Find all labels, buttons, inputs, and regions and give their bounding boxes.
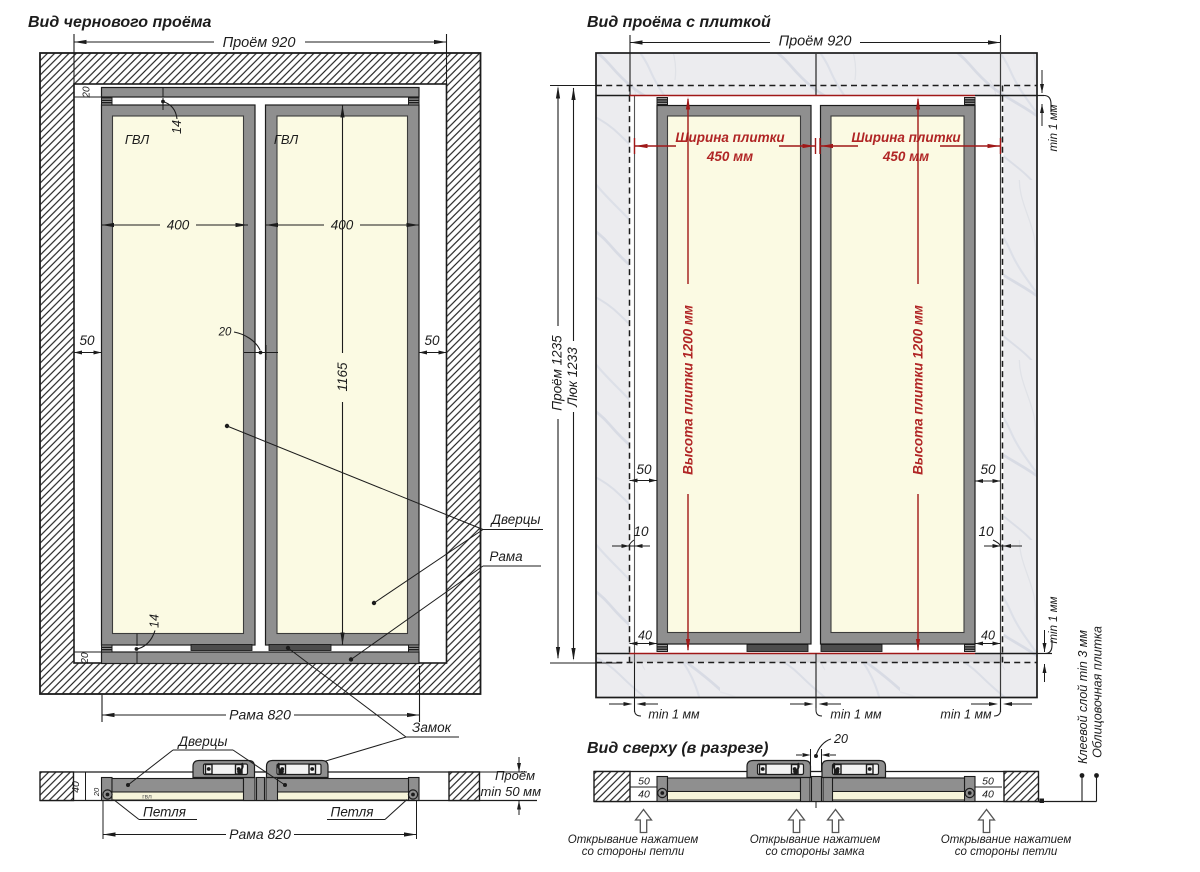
svg-text:Ширина плитки: Ширина плитки [851, 130, 961, 145]
svg-text:Открывание нажатием: Открывание нажатием [750, 834, 881, 846]
svg-text:со стороны петли: со стороны петли [582, 846, 685, 858]
svg-text:Открывание нажатием: Открывание нажатием [568, 834, 699, 846]
svg-text:Облицовочная плитка: Облицовочная плитка [1091, 626, 1105, 758]
svg-text:min 1 мм: min 1 мм [830, 708, 882, 722]
svg-text:40: 40 [638, 789, 650, 801]
svg-text:со стороны петли: со стороны петли [955, 846, 1058, 858]
svg-text:Клеевой слой min 3 мм: Клеевой слой min 3 мм [1076, 630, 1090, 764]
svg-text:Открывание нажатием: Открывание нажатием [941, 834, 1072, 846]
svg-text:min 50 мм: min 50 мм [481, 784, 542, 799]
svg-text:Проём 1235: Проём 1235 [550, 335, 565, 411]
svg-text:Проём 920: Проём 920 [223, 35, 296, 51]
svg-text:Вид проёма с плиткой: Вид проёма с плиткой [587, 14, 771, 31]
svg-text:40: 40 [982, 789, 994, 801]
svg-text:min 1 мм: min 1 мм [648, 708, 700, 722]
svg-text:min 1 мм: min 1 мм [1048, 104, 1060, 151]
svg-text:Рама 820: Рама 820 [229, 826, 291, 842]
svg-text:Высота плитки 1200 мм: Высота плитки 1200 мм [911, 305, 926, 475]
svg-text:50: 50 [636, 462, 652, 477]
svg-text:min 1 мм: min 1 мм [1048, 596, 1060, 643]
svg-text:ГВЛ: ГВЛ [274, 132, 298, 147]
svg-text:1165: 1165 [335, 362, 350, 392]
svg-text:Вид сверху (в разрезе): Вид сверху (в разрезе) [587, 740, 768, 757]
svg-text:Вид чернового проёма: Вид чернового проёма [28, 14, 212, 31]
svg-text:min 1 мм: min 1 мм [940, 708, 992, 722]
svg-text:20: 20 [218, 327, 232, 339]
svg-text:Рама: Рама [489, 549, 523, 564]
svg-text:Дверцы: Дверцы [177, 734, 228, 749]
svg-text:14: 14 [148, 614, 162, 628]
svg-text:40: 40 [981, 629, 995, 643]
svg-text:450 мм: 450 мм [882, 149, 929, 164]
svg-text:20: 20 [82, 86, 93, 99]
svg-text:Дверцы: Дверцы [490, 512, 541, 527]
svg-text:50: 50 [79, 333, 95, 348]
svg-text:Петля: Петля [331, 805, 374, 820]
svg-text:Замок: Замок [412, 720, 452, 735]
svg-text:Петля: Петля [143, 805, 186, 820]
svg-text:50: 50 [982, 776, 994, 788]
svg-text:50: 50 [638, 776, 650, 788]
svg-text:ГВЛ: ГВЛ [125, 132, 149, 147]
svg-text:40: 40 [70, 781, 82, 793]
svg-text:20: 20 [92, 787, 101, 797]
svg-text:10: 10 [978, 524, 994, 539]
svg-text:со стороны замка: со стороны замка [765, 846, 864, 858]
svg-text:Проём: Проём [495, 768, 535, 783]
svg-text:20: 20 [80, 652, 91, 665]
svg-text:Высота плитки 1200 мм: Высота плитки 1200 мм [681, 305, 696, 475]
svg-text:Рама 820: Рама 820 [229, 707, 291, 723]
svg-text:20: 20 [833, 732, 848, 746]
svg-text:14: 14 [170, 120, 184, 134]
svg-text:Люк 1233: Люк 1233 [565, 347, 580, 408]
svg-text:Проём 920: Проём 920 [779, 34, 852, 50]
svg-text:Ширина плитки: Ширина плитки [675, 130, 785, 145]
svg-text:450 мм: 450 мм [706, 149, 753, 164]
svg-text:50: 50 [980, 462, 996, 477]
svg-text:50: 50 [424, 333, 440, 348]
svg-text:гвл: гвл [142, 794, 152, 801]
svg-text:40: 40 [638, 629, 652, 643]
svg-text:400: 400 [167, 218, 190, 233]
svg-text:10: 10 [633, 524, 649, 539]
